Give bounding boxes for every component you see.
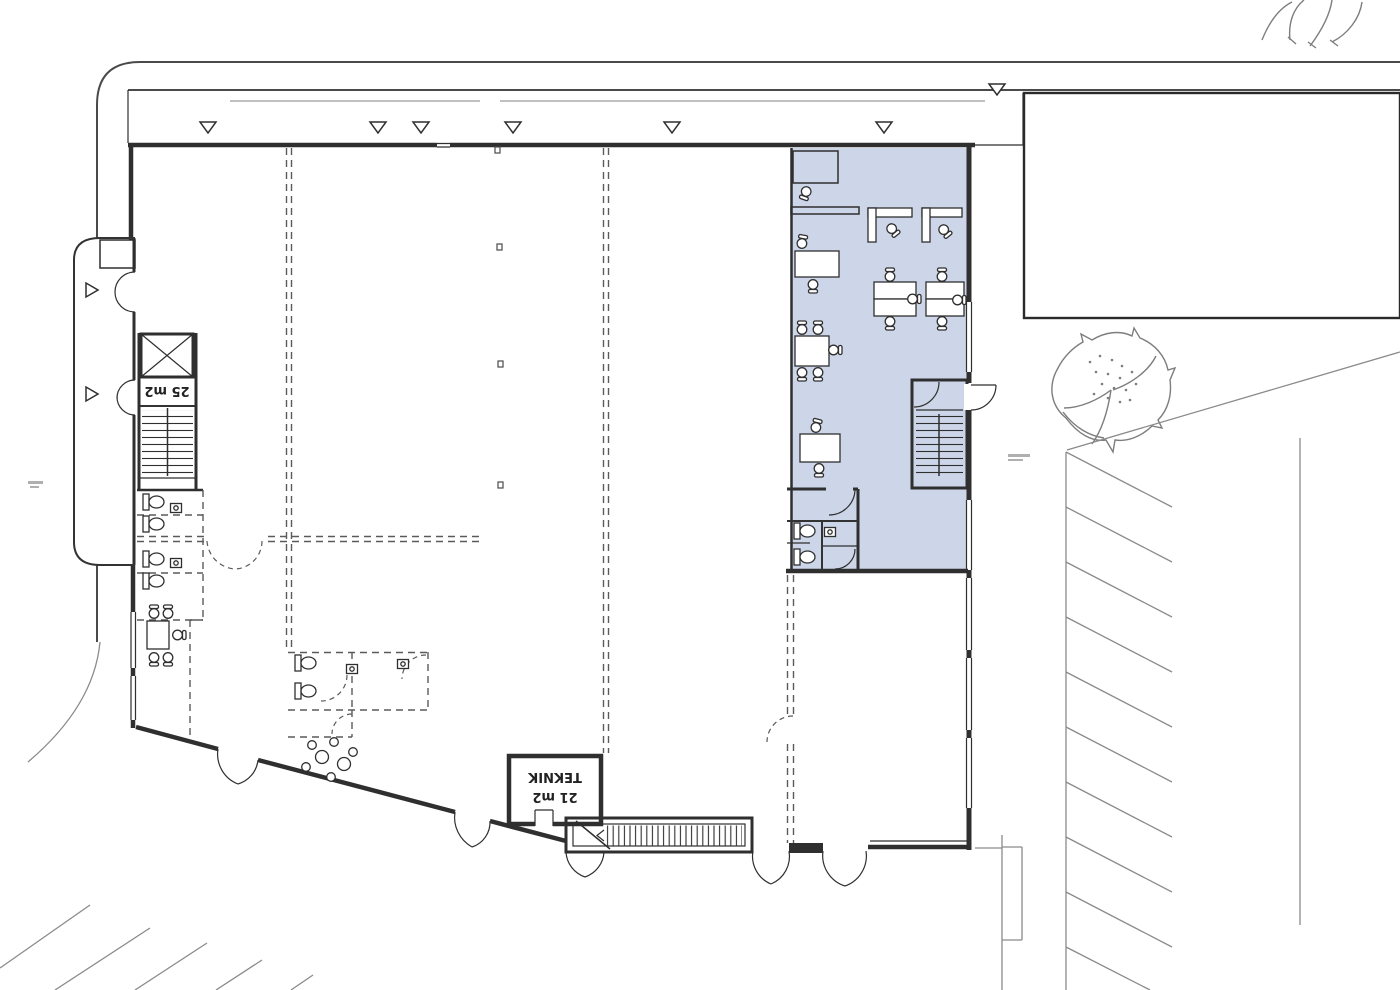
meeting-table-left xyxy=(147,605,186,666)
neighbor-building xyxy=(1024,93,1400,318)
curb-lines xyxy=(975,835,1022,990)
floorplan-drawing: 25 m2 xyxy=(0,0,1400,990)
teknik-room-name-label: TEKNIK xyxy=(527,769,582,784)
teknik-room-area-label: 21 m2 xyxy=(532,789,577,804)
column-marks xyxy=(495,147,503,488)
stair-core-area-label: 25 m2 xyxy=(144,383,189,398)
corridor-partition-dashed xyxy=(137,537,480,570)
tree-top-right xyxy=(1262,0,1362,48)
elevator xyxy=(141,334,193,377)
entrance-center-post xyxy=(789,843,823,853)
tree-icon xyxy=(1052,328,1175,452)
parking-area-bottom-left xyxy=(0,905,313,990)
toilets-middle-dashed xyxy=(288,652,428,737)
floorplan-canvas: 25 m2 xyxy=(0,0,1400,990)
zone-partitions-dashed xyxy=(287,148,794,843)
parking-area-right xyxy=(1066,352,1400,990)
entrance-canopy xyxy=(74,238,135,565)
